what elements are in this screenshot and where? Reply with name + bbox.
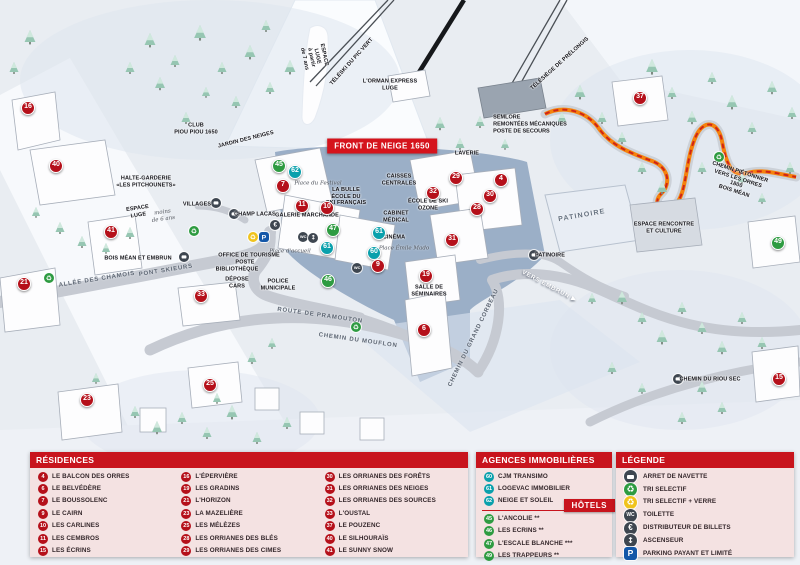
residences-column-1: 4LE BALCON DES ORRES6LE BELVÉDÈRE7LE BOU… [34,471,177,558]
legend-item-label: LES TRAPPEURS ** [498,553,559,559]
legend-item-label: L'HORIZON [195,498,230,504]
badge-41: 41 [325,546,335,556]
badge-33: 33 [325,509,335,519]
legend-item-l-oustal: 33L'OUSTAL [321,508,464,520]
legend-item-distributeur-de-billets: DISTRIBUTEUR DE BILLETS [620,522,790,535]
legend-item-label: LES ORRIANES DES CIMES [195,548,281,554]
legend-item-label: DISTRIBUTEUR DE BILLETS [643,525,731,531]
legend-item-les-orrianes-des-for-ts: 30LES ORRIANES DES FORÊTS [321,471,464,483]
badge-11: 11 [38,534,48,544]
legend-item-arret-de-navette: ARRET DE NAVETTE [620,471,790,484]
legend-item-logevac-immobilier: 61LOGEVAC IMMOBILIER [480,483,608,495]
badge-61: 61 [484,484,494,494]
badge-10: 10 [38,521,48,531]
glass-icon [624,496,637,509]
legend-item-label: TRI SELECTIF + VERRE [643,499,716,505]
badge-25: 25 [181,521,191,531]
badge-21: 21 [181,496,191,506]
legend-item-les-orrianes-des-sources: 32LES ORRIANES DES SOURCES [321,495,464,507]
legend-item-l-horizon: 21L'HORIZON [177,495,320,507]
badge-23: 23 [181,509,191,519]
front-de-neige-banner: FRONT DE NEIGE 1650 [327,139,437,154]
legend-item-label: LES ÉCRINS [52,548,91,554]
legend-item-label: PARKING PAYANT ET LIMITÉ [643,551,732,557]
badge-15: 15 [38,546,48,556]
legend-item-label: ARRET DE NAVETTE [643,474,707,480]
legend-item-label: L'ÉPERVIÈRE [195,474,237,480]
bus-icon [624,470,637,483]
legend-item-le-balcon-des-orres: 4LE BALCON DES ORRES [34,471,177,483]
legend-item-label: LE SUNNY SNOW [339,548,393,554]
badge-32: 32 [325,496,335,506]
resort-map: CLUB PIOU PIOU 1650JARDIN DES NEIGESESPA… [0,0,800,565]
legend-item-l-escale-blanche: 47L'ESCALE BLANCHE *** [480,537,608,549]
legend-item-label: LES ORRIANES DES NEIGES [339,486,429,492]
badge-62: 62 [484,496,494,506]
park-icon [624,547,637,560]
badge-37: 37 [325,521,335,531]
hotels-header: HÔTELS [564,499,615,512]
badge-9: 9 [38,509,48,519]
legend-item-le-boussolenc: 7LE BOUSSOLENC [34,495,177,507]
legend-item-tri-selectif: TRI SELECTIF [620,483,790,496]
legend-item-label: TOILETTE [643,512,674,518]
legend-item-label: LES ORRIANES DES BLÉS [195,536,278,542]
residences-card: RÉSIDENCES 4LE BALCON DES ORRES6LE BELVÉ… [30,452,468,557]
badge-19: 19 [181,484,191,494]
legend-item-label: LES ORRIANES DES SOURCES [339,498,436,504]
badge-6: 6 [38,484,48,494]
legend-item-tri-selectif-verre: TRI SELECTIF + VERRE [620,496,790,509]
residences-list: 4LE BALCON DES ORRES6LE BELVÉDÈRE7LE BOU… [30,468,468,561]
badge-28: 28 [181,534,191,544]
legend-item-le-cairn: 9LE CAIRN [34,508,177,520]
euro-icon [624,522,637,535]
legend-item-label: LE BOUSSOLENC [52,498,108,504]
legend-item-l-ancolie: 45L'ANCOLIE ** [480,513,608,525]
legend-item-label: LE POUZENC [339,523,381,529]
legend-item-les-m-l-zes: 25LES MÉLÈZES [177,520,320,532]
badge-30: 30 [325,472,335,482]
legend-item-label: LE CAIRN [52,511,83,517]
badge-7: 7 [38,496,48,506]
legend-item-les-orrianes-des-bl-s: 28LES ORRIANES DES BLÉS [177,532,320,544]
legend-item-label: NEIGE ET SOLEIL [498,498,553,504]
legend-item-le-sunny-snow: 41LE SUNNY SNOW [321,545,464,557]
agences-card: AGENCES IMMOBILIÈRES 60CJM TRANSIMO61LOG… [476,452,612,557]
legend-item-la-mazeli-re: 23LA MAZELIÈRE [177,508,320,520]
legend-item-label: LA MAZELIÈRE [195,511,243,517]
legend-item-les-orrianes-des-cimes: 29LES ORRIANES DES CIMES [177,545,320,557]
legend-item-label: LE BALCON DES ORRES [52,474,129,480]
legend-item-les-ecrins: 46LES ECRINS ** [480,525,608,537]
legend-item-le-silhoura-s: 40LE SILHOURAÏS [321,532,464,544]
legend-item-label: LES CEMBROS [52,536,99,542]
legend-item-label: LES GRADINS [195,486,239,492]
legend-item-label: TRI SELECTIF [643,487,687,493]
residences-header: RÉSIDENCES [30,452,468,468]
lift-icon [624,534,637,547]
agences-header: AGENCES IMMOBILIÈRES [476,452,612,468]
legend-item-label: L'ANCOLIE ** [498,516,540,522]
residences-column-2: 16L'ÉPERVIÈRE19LES GRADINS21L'HORIZON23L… [177,471,320,558]
legend-item-les-gradins: 19LES GRADINS [177,483,320,495]
legend-item-l-pervi-re: 16L'ÉPERVIÈRE [177,471,320,483]
badge-46: 46 [484,526,494,536]
legend-item-label: LES ORRIANES DES FORÊTS [339,474,431,480]
legend-item-label: LOGEVAC IMMOBILIER [498,486,570,492]
legend-item-label: LES ECRINS ** [498,528,544,534]
legend-item-toilette: TOILETTE [620,509,790,522]
legende-list: ARRET DE NAVETTETRI SELECTIFTRI SELECTIF… [616,468,794,564]
legend-item-cjm-transimo: 60CJM TRANSIMO [480,471,608,483]
legend-item-les-trappeurs: 49LES TRAPPEURS ** [480,550,608,562]
badge-47: 47 [484,539,494,549]
legend-item-label: ASCENSEUR [643,538,683,544]
legend-item-les-orrianes-des-neiges: 31LES ORRIANES DES NEIGES [321,483,464,495]
badge-60: 60 [484,472,494,482]
legend-item-les-carlines: 10LES CARLINES [34,520,177,532]
agences-list: 60CJM TRANSIMO61LOGEVAC IMMOBILIER62NEIG… [476,468,612,565]
legend-item-label: L'ESCALE BLANCHE *** [498,541,573,547]
badge-45: 45 [484,514,494,524]
legend-item-label: LES MÉLÈZES [195,523,240,529]
legend-item-label: L'OUSTAL [339,511,371,517]
badge-29: 29 [181,546,191,556]
badge-40: 40 [325,534,335,544]
legend-item-label: LE BELVÉDÈRE [52,486,101,492]
legend-item-le-belv-d-re: 6LE BELVÉDÈRE [34,483,177,495]
badge-4: 4 [38,472,48,482]
legend-item-ascenseur: ASCENSEUR [620,534,790,547]
badge-16: 16 [181,472,191,482]
legend-item-label: CJM TRANSIMO [498,474,548,480]
legende-header: LÉGENDE [616,452,794,468]
badge-49: 49 [484,551,494,561]
legende-card: LÉGENDE ARRET DE NAVETTETRI SELECTIFTRI … [616,452,794,557]
legend-item-parking-payant-et-limit: PARKING PAYANT ET LIMITÉ [620,547,790,560]
residences-column-3: 30LES ORRIANES DES FORÊTS31LES ORRIANES … [321,471,464,558]
wc-icon [624,509,637,522]
legend-item-label: LE SILHOURAÏS [339,536,389,542]
legend-item-label: LES CARLINES [52,523,99,529]
legend-item-le-pouzenc: 37LE POUZENC [321,520,464,532]
recycle-icon [624,483,637,496]
legend-item-les-crins: 15LES ÉCRINS [34,545,177,557]
legend-item-les-cembros: 11LES CEMBROS [34,532,177,544]
badge-31: 31 [325,484,335,494]
